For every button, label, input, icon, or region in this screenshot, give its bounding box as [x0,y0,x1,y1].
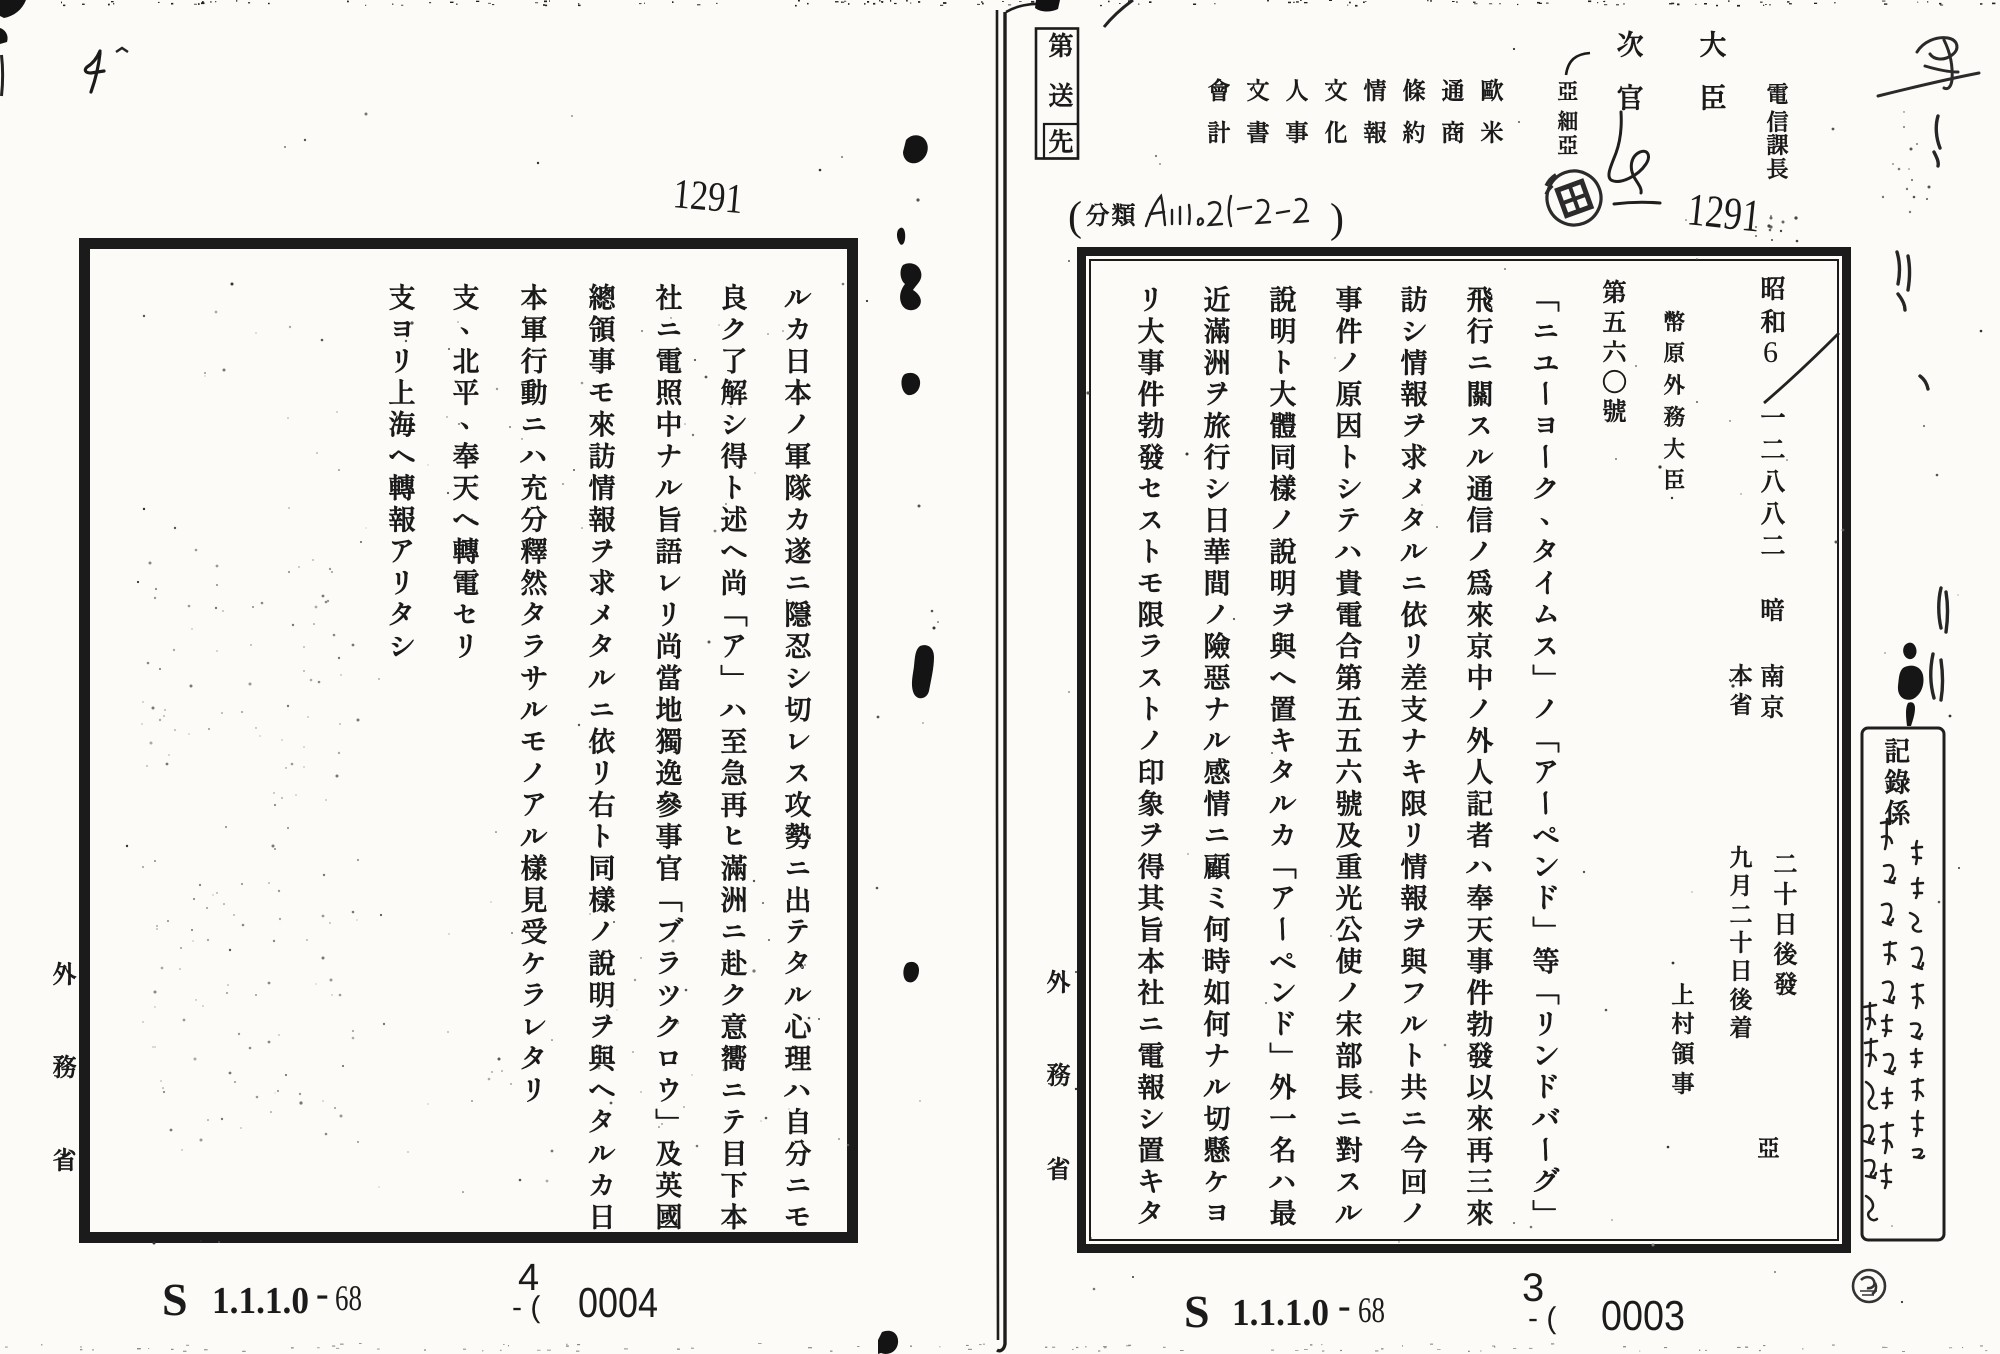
svg-text:68: 68 [1358,1290,1385,1330]
svg-text:-: - [1338,1285,1351,1327]
svg-text:S: S [1184,1286,1210,1337]
svg-text:6: 6 [1763,336,1778,369]
svg-text:- (: - ( [1528,1302,1556,1335]
svg-text:- (: - ( [512,1291,540,1324]
svg-text:1291: 1291 [671,171,745,223]
svg-text:): ) [1330,196,1344,242]
svg-text:1.1.1.0: 1.1.1.0 [1232,1292,1329,1334]
svg-text:S: S [162,1274,188,1325]
svg-text:68: 68 [335,1278,362,1318]
svg-text:(: ( [1068,194,1082,240]
svg-text:1.1.1.0: 1.1.1.0 [212,1280,309,1322]
svg-text:0003: 0003 [1601,1292,1685,1339]
svg-text:0004: 0004 [578,1279,658,1326]
svg-text:1291: 1291 [1685,183,1763,241]
svg-text:-: - [316,1273,329,1315]
